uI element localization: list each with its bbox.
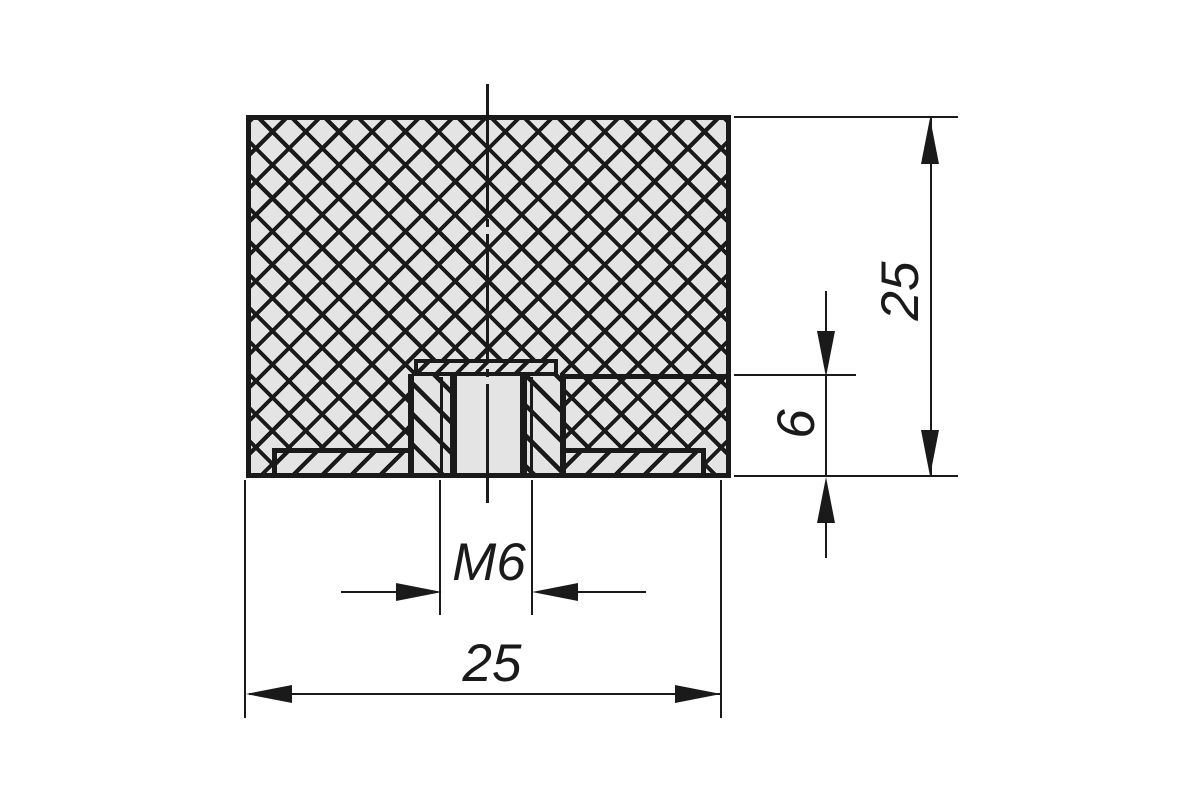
height-arrow-top-icon xyxy=(921,118,939,164)
insert-base-plate-left xyxy=(272,448,408,473)
height-dim-line xyxy=(930,118,932,476)
insert-base-plate-right xyxy=(566,448,706,473)
height-label: 25 xyxy=(875,230,927,352)
height-arrow-bottom-icon xyxy=(921,430,939,476)
depth-stem-top xyxy=(825,291,827,332)
m6-dim-stem-left xyxy=(341,591,397,593)
thread-major-line-left xyxy=(440,377,443,473)
insert-top-edge-line xyxy=(560,374,731,379)
m6-dim-stem-right xyxy=(576,591,646,593)
depth-label: 6 xyxy=(771,363,823,485)
technical-drawing-sheet: M6 25 25 6 xyxy=(0,0,1200,800)
thread-size-label: M6 xyxy=(428,537,550,589)
depth-stem-bottom xyxy=(825,521,827,558)
diameter-dim-line xyxy=(249,693,721,695)
diameter-label: 25 xyxy=(431,638,553,690)
diameter-extension-line-right xyxy=(720,480,722,718)
diameter-arrow-right-icon xyxy=(675,685,721,703)
diameter-extension-line-left xyxy=(244,480,246,718)
centerline xyxy=(486,84,489,503)
thread-major-line-right xyxy=(530,377,533,473)
diameter-arrow-left-icon xyxy=(246,685,292,703)
